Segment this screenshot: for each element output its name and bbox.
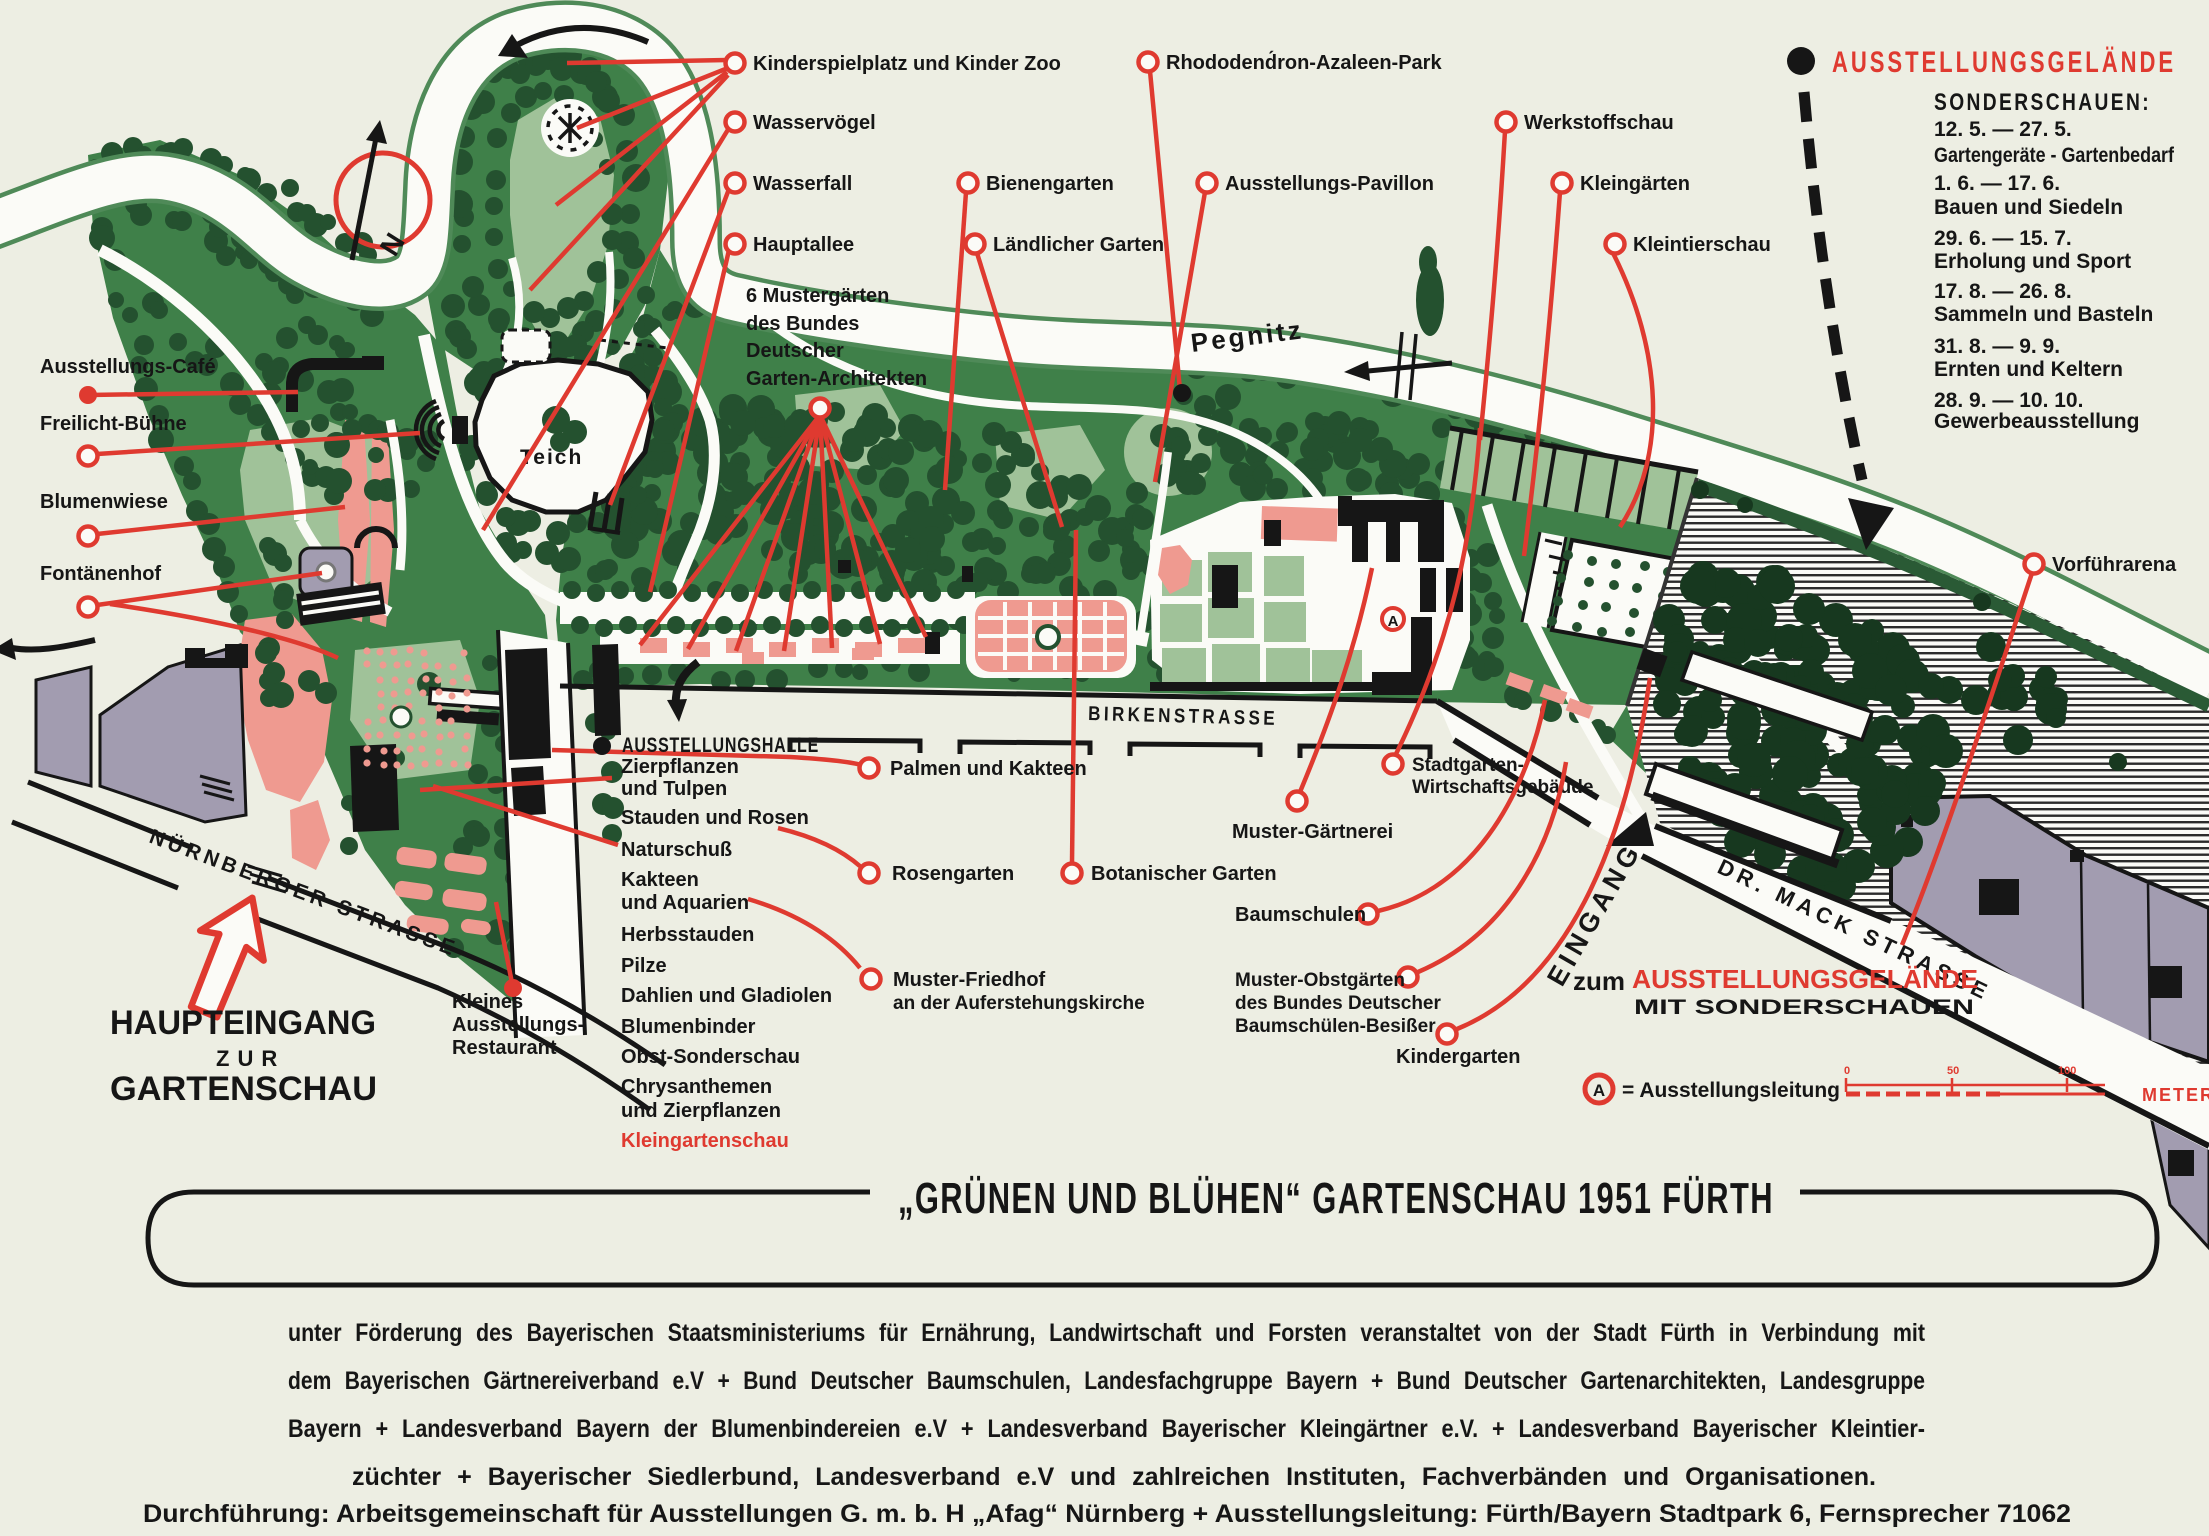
svg-text:Kleines: Kleines: [452, 991, 523, 1013]
svg-text:Bauen und Siedeln: Bauen und Siedeln: [1934, 196, 2123, 219]
svg-text:Hauptallee: Hauptallee: [753, 234, 854, 256]
svg-text:züchter + Bayerischer Siedlerb: züchter + Bayerischer Siedlerbund, Lande…: [352, 1463, 1876, 1491]
svg-text:des Bundes Deutscher: des Bundes Deutscher: [1235, 993, 1441, 1014]
svg-text:17. 8. — 26. 8.: 17. 8. — 26. 8.: [1934, 280, 2072, 303]
svg-text:A: A: [1593, 1081, 1605, 1100]
svg-text:A: A: [1388, 613, 1399, 630]
svg-text:Freilicht-Bühne: Freilicht-Bühne: [40, 413, 187, 435]
svg-text:Blumenbinder: Blumenbinder: [621, 1016, 756, 1038]
svg-text:und Aquarien: und Aquarien: [621, 892, 749, 914]
svg-text:28. 9. — 10. 10.: 28. 9. — 10. 10.: [1934, 389, 2083, 412]
svg-text:Rhododend́ron-Azaleen-Park: Rhododend́ron-Azaleen-Park: [1166, 50, 1442, 74]
svg-text:Wasserfall: Wasserfall: [753, 173, 852, 195]
svg-text:Chrysanthemen: Chrysanthemen: [621, 1076, 772, 1098]
svg-text:Dahlien und Gladiolen: Dahlien und Gladiolen: [621, 985, 832, 1007]
svg-text:Blumenwiese: Blumenwiese: [40, 491, 168, 513]
svg-text:Wirtschaftsgebäude: Wirtschaftsgebäude: [1412, 777, 1593, 798]
svg-text:AUSSTELLUNGSGELÄNDE: AUSSTELLUNGSGELÄNDE: [1832, 46, 2176, 79]
svg-text:Vorführarena: Vorführarena: [2052, 554, 2177, 576]
svg-text:und Tulpen: und Tulpen: [621, 778, 727, 800]
svg-text:Kleingartenschau: Kleingartenschau: [621, 1130, 789, 1152]
svg-text:SONDERSCHAUEN:: SONDERSCHAUEN:: [1934, 89, 2151, 116]
svg-text:„GRÜNEN UND BLÜHEN“ GARTENSCHA: „GRÜNEN UND BLÜHEN“ GARTENSCHAU 1951 FÜR…: [898, 1174, 1774, 1223]
svg-text:Ländlicher Garten: Ländlicher Garten: [993, 234, 1164, 256]
svg-text:Obst-Sonderschau: Obst-Sonderschau: [621, 1046, 800, 1068]
svg-text:Deutscher: Deutscher: [746, 340, 844, 362]
svg-text:0: 0: [1844, 1065, 1850, 1077]
svg-text:Ausstellungs-Pavillon: Ausstellungs-Pavillon: [1225, 173, 1434, 195]
svg-text:Baumschulen: Baumschulen: [1235, 904, 1366, 926]
svg-text:Kleintierschau: Kleintierschau: [1633, 234, 1771, 256]
svg-text:HAUPTEINGANG: HAUPTEINGANG: [110, 1004, 376, 1042]
svg-text:Ausstellungs-: Ausstellungs-: [452, 1014, 584, 1036]
svg-text:Sammeln und Basteln: Sammeln und Basteln: [1934, 303, 2153, 326]
svg-text:dem Bayerischen Gärtnereiverba: dem Bayerischen Gärtnereiverband e.V + B…: [288, 1367, 1925, 1395]
svg-text:Gartengeräte - Gartenbedarf: Gartengeräte - Gartenbedarf: [1934, 144, 2175, 167]
svg-text:Stadtgarten-: Stadtgarten-: [1412, 755, 1524, 776]
svg-text:Ausstellungs-Café: Ausstellungs-Café: [40, 356, 216, 378]
svg-text:GARTENSCHAU: GARTENSCHAU: [110, 1070, 377, 1108]
svg-text:Naturschuß: Naturschuß: [621, 839, 732, 861]
svg-text:12. 5. — 27. 5.: 12. 5. — 27. 5.: [1934, 118, 2072, 141]
svg-text:100: 100: [2058, 1065, 2076, 1077]
svg-text:Baumschülen-Besißer: Baumschülen-Besißer: [1235, 1016, 1436, 1037]
svg-text:AUSSTELLUNGSGELÄNDE: AUSSTELLUNGSGELÄNDE: [1632, 964, 1978, 994]
svg-text:Stauden und Rosen: Stauden und Rosen: [621, 807, 809, 829]
svg-text:an der Auferstehungskirche: an der Auferstehungskirche: [893, 993, 1145, 1014]
svg-text:Ernten und Keltern: Ernten und Keltern: [1934, 358, 2123, 381]
svg-text:Kleingärten: Kleingärten: [1580, 173, 1690, 195]
svg-text:zum: zum: [1573, 966, 1625, 996]
svg-text:unter Förderung des Bayerische: unter Förderung des Bayerischen Staatsmi…: [288, 1319, 1926, 1347]
svg-text:des Bundes: des Bundes: [746, 313, 859, 335]
svg-text:6 Mustergärten: 6 Mustergärten: [746, 285, 889, 307]
svg-text:AUSSTELLUNGSHALLE: AUSSTELLUNGSHALLE: [622, 734, 819, 757]
svg-text:ZUR: ZUR: [216, 1046, 285, 1071]
svg-text:Gewerbeausstellung: Gewerbeausstellung: [1934, 410, 2139, 433]
svg-text:Bayern + Landesverband Bayern: Bayern + Landesverband Bayern der Blumen…: [288, 1415, 1925, 1443]
svg-text:Muster-Obstgärten: Muster-Obstgärten: [1235, 970, 1405, 991]
svg-text:Botanischer Garten: Botanischer Garten: [1091, 863, 1277, 885]
svg-text:Erholung und Sport: Erholung und Sport: [1934, 250, 2131, 273]
svg-text:Kindergarten: Kindergarten: [1396, 1046, 1520, 1068]
svg-text:Restaurant: Restaurant: [452, 1037, 557, 1059]
svg-text:Werkstoffschau: Werkstoffschau: [1524, 112, 1674, 134]
svg-text:Durchführung: Arbeitsgemeinsc: Durchführung: Arbeitsgemeinschaft für Au…: [143, 1500, 2071, 1528]
svg-text:Bienengarten: Bienengarten: [986, 173, 1114, 195]
svg-text:Kakteen: Kakteen: [621, 869, 699, 891]
svg-text:Muster-Gärtnerei: Muster-Gärtnerei: [1232, 821, 1393, 843]
svg-text:Herbsstauden: Herbsstauden: [621, 924, 754, 946]
svg-text:und Zierpflanzen: und Zierpflanzen: [621, 1100, 781, 1122]
svg-text:31. 8. — 9. 9.: 31. 8. — 9. 9.: [1934, 335, 2060, 358]
svg-text:Muster-Friedhof: Muster-Friedhof: [893, 969, 1046, 991]
svg-text:Garten-Architekten: Garten-Architekten: [746, 368, 927, 390]
svg-text:Rosengarten: Rosengarten: [892, 863, 1014, 885]
svg-text:Fontänenhof: Fontänenhof: [40, 563, 161, 585]
svg-text:Kinderspielplatz und Kinder Zo: Kinderspielplatz und Kinder Zoo: [753, 53, 1061, 75]
svg-text:METER: METER: [2142, 1085, 2209, 1105]
svg-text:Palmen und Kakteen: Palmen und Kakteen: [890, 758, 1087, 780]
svg-text:Wasservögel: Wasservögel: [753, 112, 876, 134]
svg-text:29. 6. — 15. 7.: 29. 6. — 15. 7.: [1934, 227, 2072, 250]
svg-text:Pilze: Pilze: [621, 955, 667, 977]
svg-text:50: 50: [1947, 1065, 1959, 1077]
svg-text:= Ausstellungsleitung: = Ausstellungsleitung: [1622, 1079, 1840, 1102]
svg-text:Zierpflanzen: Zierpflanzen: [621, 756, 739, 778]
svg-text:MIT SONDERSCHAUEN: MIT SONDERSCHAUEN: [1634, 996, 1974, 1019]
svg-text:1. 6. — 17. 6.: 1. 6. — 17. 6.: [1934, 172, 2060, 195]
